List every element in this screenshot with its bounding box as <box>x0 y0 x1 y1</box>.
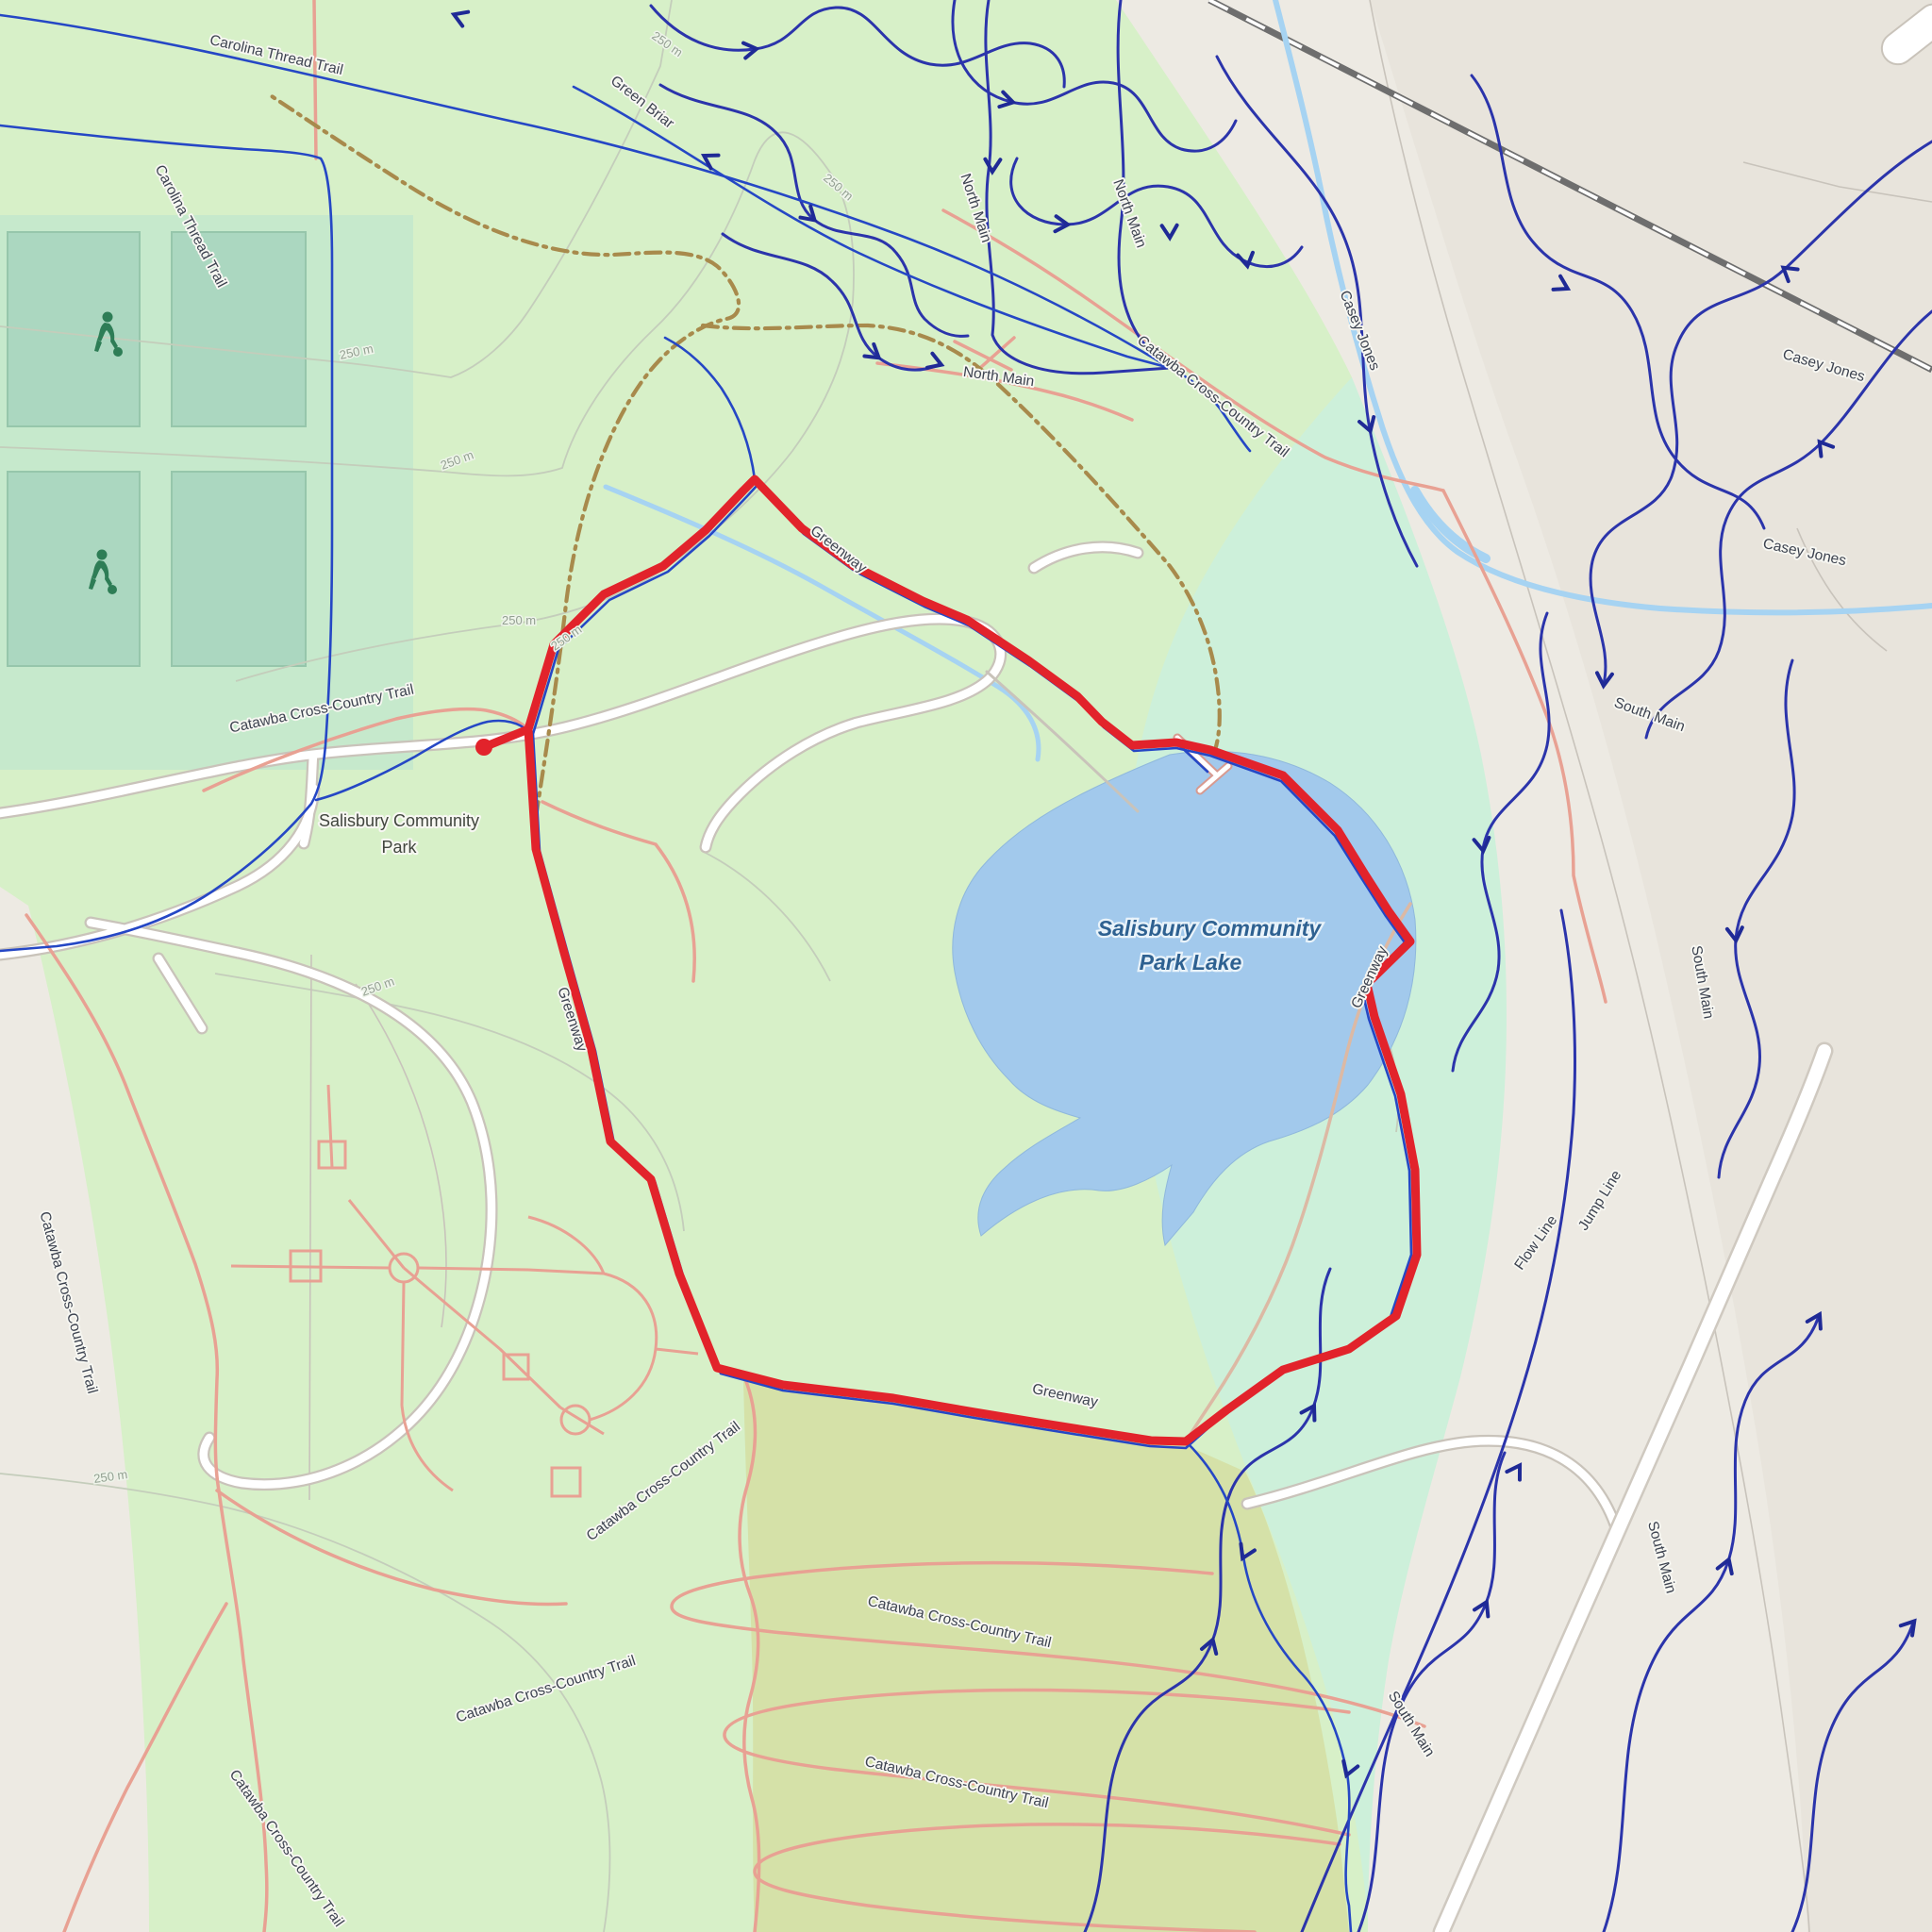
map-canvas[interactable]: Carolina Thread TrailCarolina Thread Tra… <box>0 0 1932 1932</box>
map-label: Salisbury Community <box>1098 916 1323 941</box>
map-label: Park Lake <box>1140 950 1242 974</box>
trail-map-screenshot: Carolina Thread TrailCarolina Thread Tra… <box>0 0 1932 1932</box>
route-start-marker[interactable] <box>475 739 492 756</box>
sports-field <box>0 215 413 770</box>
map-label: Park <box>381 838 417 857</box>
map-label: 250 m <box>502 613 536 627</box>
map-label: Salisbury Community <box>319 811 479 830</box>
